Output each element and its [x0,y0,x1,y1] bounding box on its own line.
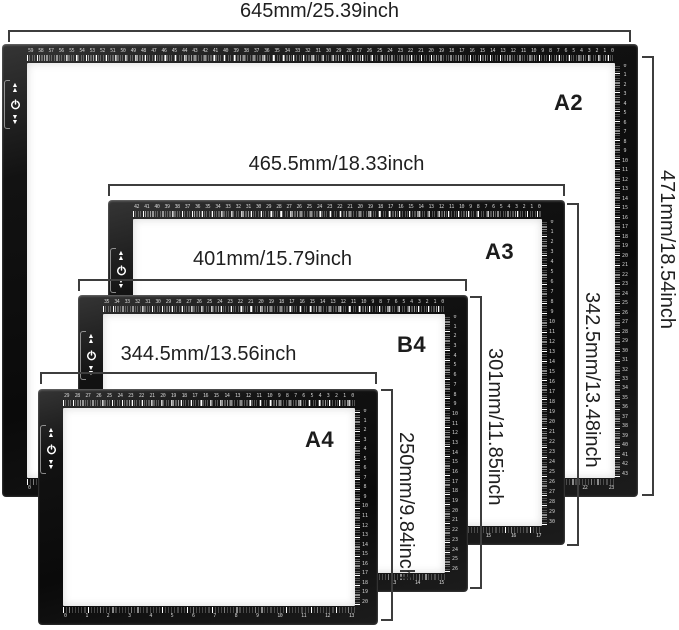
dimension-width-a4: 344.5mm/13.56inch [40,343,377,366]
dimension-bracket-width-a3 [108,184,565,186]
dimension-bracket-width-a4 [40,372,377,374]
control-panel: ▲▲ ▼▼ [43,429,59,470]
ruler-right-cm: 01234567891011121314151617181920 [355,409,370,605]
ruler-bottom-inch: 012345678910111213 [63,607,355,622]
dimension-bracket-height-a2 [652,56,654,496]
power-icon [10,99,21,110]
dimension-height-a4: 250mm/9.84inch [394,432,417,580]
dimension-height-a3: 342.5mm/13.48inch [580,292,603,468]
size-label-a4: A4 [305,427,334,453]
dimension-bracket-width-a2 [8,30,631,32]
dimension-width-b4: 401mm/15.79inch [78,248,467,271]
brightness-up-icon: ▲▲ [48,429,55,438]
ruler-top-cm: 5958575655545352515049484746454443424140… [27,48,615,63]
dimension-bracket-height-a4 [391,389,393,621]
dimension-height-b4: 301mm/11.85inch [483,348,506,506]
brightness-down-icon: ▼▼ [12,116,19,125]
dimension-bracket-width-b4 [78,279,467,281]
dimension-bracket-height-a3 [577,203,579,546]
control-panel: ▲▲ ▼▼ [7,84,23,125]
dimension-width-a2: 645mm/25.39inch [8,0,631,23]
ruler-top-cm: 3534333231302928272625242322212019181716… [103,299,445,314]
size-label-a3: A3 [485,239,514,265]
ruler-top-cm: 4241403938373635343332313029282726252423… [133,204,542,219]
brightness-up-icon: ▲▲ [12,84,19,93]
dimension-bracket-height-b4 [480,296,482,589]
size-label-a2: A2 [554,90,583,116]
ruler-right-cm: 0123456789101112131415161718192021222324… [445,315,460,572]
light-pad-a4: 2928272625242322212019181716151413121110… [38,389,378,625]
power-icon [46,444,57,455]
ruler-right-cm: 0123456789101112131415161718192021222324… [542,220,557,525]
ruler-right-cm: 0123456789101112131415161718192021222324… [615,64,630,477]
size-label-b4: B4 [397,332,426,358]
brightness-down-icon: ▼▼ [118,280,125,289]
brightness-down-icon: ▼▼ [48,461,55,470]
ruler-top-cm: 2928272625242322212019181716151413121110… [63,393,355,408]
dimension-width-a3: 465.5mm/18.33inch [108,153,565,176]
dimension-height-a2: 471mm/18.54inch [655,170,678,329]
light-pad-size-diagram: 5958575655545352515049484746454443424140… [0,0,679,630]
